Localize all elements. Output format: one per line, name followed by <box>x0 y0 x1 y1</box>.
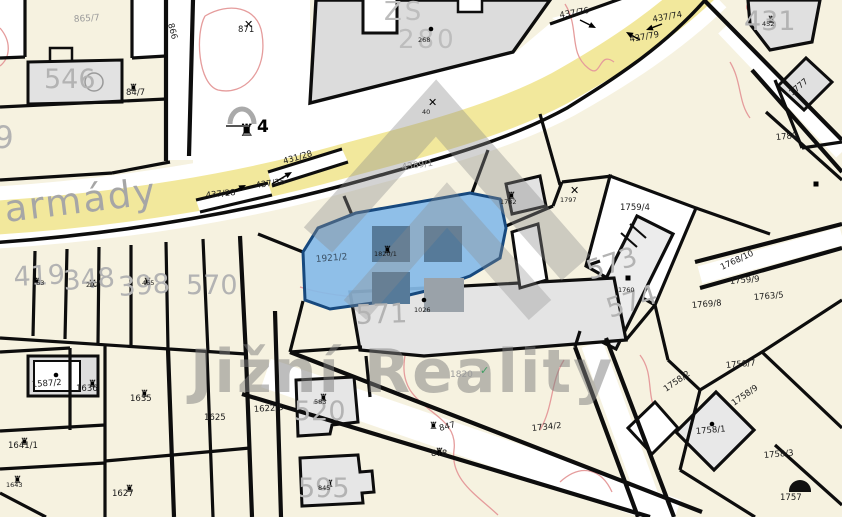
parcel-label: 419 <box>13 259 66 293</box>
parcel-label: 40 <box>422 108 430 116</box>
parcel-label: 1587/2 <box>32 378 63 390</box>
parcel-label: 845 <box>318 484 330 492</box>
parcel-label: 1636 <box>76 384 98 394</box>
map-canvas[interactable]: Jižní Reality armády ZŠ 280 1921/2 1820/… <box>0 0 842 517</box>
square-icon <box>814 182 819 187</box>
parcel-label: 268 <box>418 36 430 44</box>
parcel-label: 871 <box>238 25 254 35</box>
parcel-label: 1757 <box>780 493 802 503</box>
building-icon: ♜ <box>429 421 438 432</box>
parcel-label: 865/7 <box>74 13 101 25</box>
tree-check-icon: ✓ <box>480 364 489 377</box>
parcel-label: 1635 <box>130 394 152 404</box>
parcel-label: 583 <box>314 398 326 406</box>
parcel-label: 1641/1 <box>8 441 38 451</box>
parcel-label: 546 <box>44 64 96 95</box>
parcel-label: 1782 <box>500 198 517 206</box>
point-icon <box>422 298 427 303</box>
parcel-label: 84/7 <box>126 88 145 98</box>
parcel-label: 465 <box>142 279 154 287</box>
parcel-label: 1643 <box>6 481 23 489</box>
parcel-label: 452 <box>762 20 774 28</box>
parcel-label: 1780 <box>775 131 797 143</box>
parcel-label: 1797 <box>560 196 577 204</box>
parcel-label: 1622/5 <box>254 403 285 415</box>
white-parcel <box>0 0 25 57</box>
building-icon: ♜ <box>383 245 392 256</box>
parcel-label: 1026 <box>414 306 431 314</box>
parcel-label: 163 <box>32 279 44 287</box>
point-icon <box>429 27 434 32</box>
parcel-label: 4 <box>257 117 269 137</box>
cadastral-map: Jižní Reality armády ZŠ 280 1921/2 1820/… <box>0 0 842 517</box>
parcel-label: 878 <box>431 449 447 459</box>
parcel-label: 571 <box>355 298 408 331</box>
parcel-label: 292 <box>86 281 98 289</box>
white-parcel <box>132 0 166 58</box>
parcel-label: 1627 <box>112 489 134 499</box>
school-abbr: ZŠ <box>384 0 424 27</box>
parcel-label: 570 <box>186 270 238 301</box>
parcel-label: 9 <box>0 120 14 156</box>
watermark-text: Jižní Reality <box>186 337 614 407</box>
point-icon <box>54 373 59 378</box>
parcel-label: 1759/4 <box>620 203 650 213</box>
parcel-label: 1820 <box>450 370 473 380</box>
square-icon <box>626 276 631 281</box>
parcel-label: 348 <box>62 262 116 297</box>
parcel-label: 1625 <box>204 413 226 423</box>
parcel-label: 1760 <box>618 286 635 294</box>
